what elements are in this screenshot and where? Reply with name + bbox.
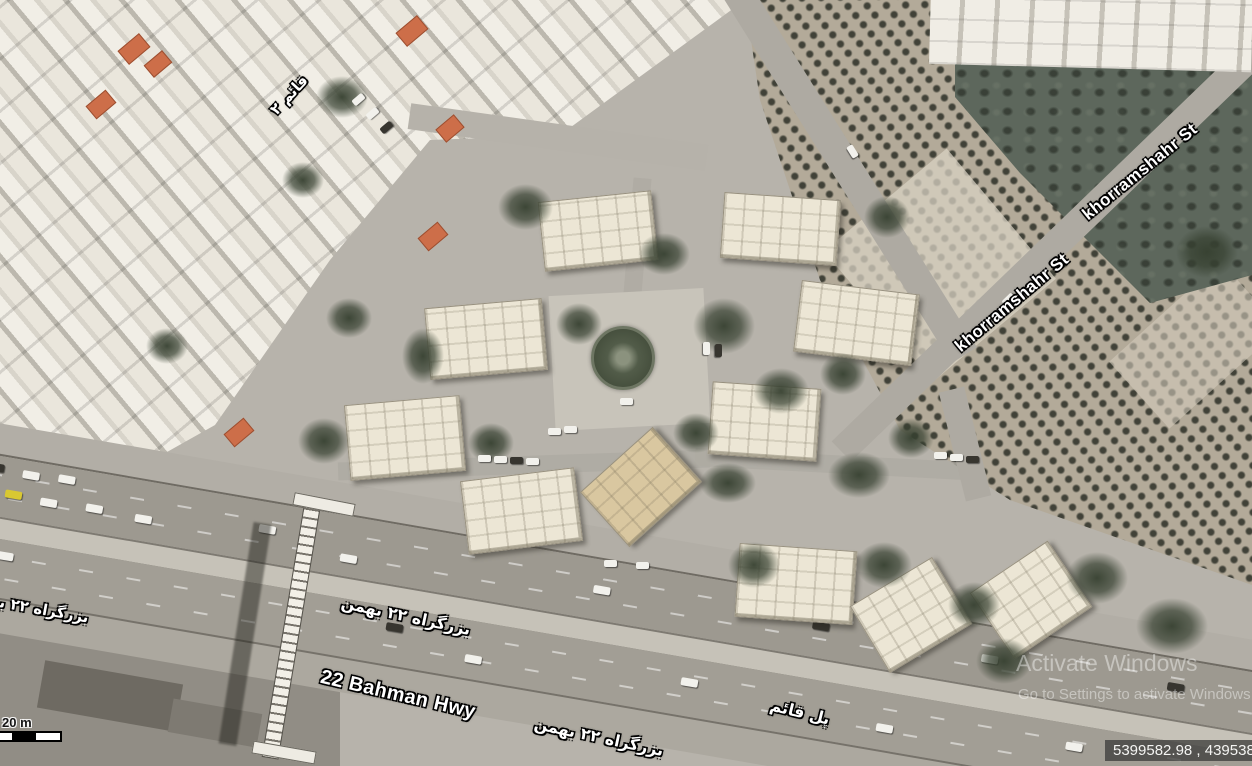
vehicle: [604, 560, 617, 567]
vehicle: [715, 344, 722, 357]
tree-grove: [1136, 598, 1208, 654]
vehicle: [703, 342, 710, 355]
vehicle: [548, 428, 561, 435]
round-garden: [591, 326, 655, 390]
tree-grove: [1066, 552, 1128, 604]
apartment-building: [720, 192, 841, 266]
vehicle: [510, 457, 523, 464]
tree-grove: [856, 542, 912, 588]
apartment-building: [424, 298, 548, 380]
orange-roof: [418, 222, 449, 252]
vehicle: [478, 455, 491, 462]
vehicle: [934, 452, 947, 459]
tree-grove: [282, 162, 324, 198]
building-block-strip: [929, 0, 1252, 72]
apartment-building: [460, 467, 583, 554]
apartment-building: [793, 280, 920, 366]
tree-grove: [468, 423, 514, 463]
tree-grove: [728, 542, 780, 588]
scale-bar: [0, 731, 62, 742]
vehicle: [494, 456, 507, 463]
orange-roof: [224, 418, 255, 448]
tree-grove: [700, 463, 756, 503]
tree-grove: [556, 303, 602, 345]
tree-grove: [820, 353, 866, 395]
tree-grove: [673, 413, 719, 453]
coordinate-readout: 5399582.98 , 4395380: [1105, 740, 1252, 761]
tree-grove: [498, 184, 553, 230]
apartment-building: [344, 395, 466, 481]
tree-grove: [146, 328, 188, 364]
tree-grove: [864, 196, 910, 238]
watermark-line1: Activate Windows: [1016, 650, 1198, 677]
tree-grove: [828, 452, 890, 498]
vehicle: [564, 426, 577, 433]
tree-grove: [948, 582, 1000, 628]
vehicle: [966, 456, 979, 463]
vehicle: [950, 454, 963, 461]
vehicle: [526, 458, 539, 465]
satellite-map[interactable]: khorramshahr St khorramshahr St قائم ۲ ب…: [0, 0, 1252, 766]
tree-grove: [888, 418, 934, 458]
scale-label: 20 m: [2, 715, 32, 730]
tree-grove: [1176, 226, 1238, 278]
tree-grove: [402, 328, 444, 384]
tree-grove: [753, 368, 809, 414]
tree-grove: [326, 298, 372, 338]
tree-grove: [638, 233, 690, 275]
vehicle: [620, 398, 633, 405]
watermark-line2: Go to Settings to activate Windows: [1018, 686, 1251, 703]
tree-grove: [298, 418, 350, 464]
vehicle: [636, 562, 649, 569]
